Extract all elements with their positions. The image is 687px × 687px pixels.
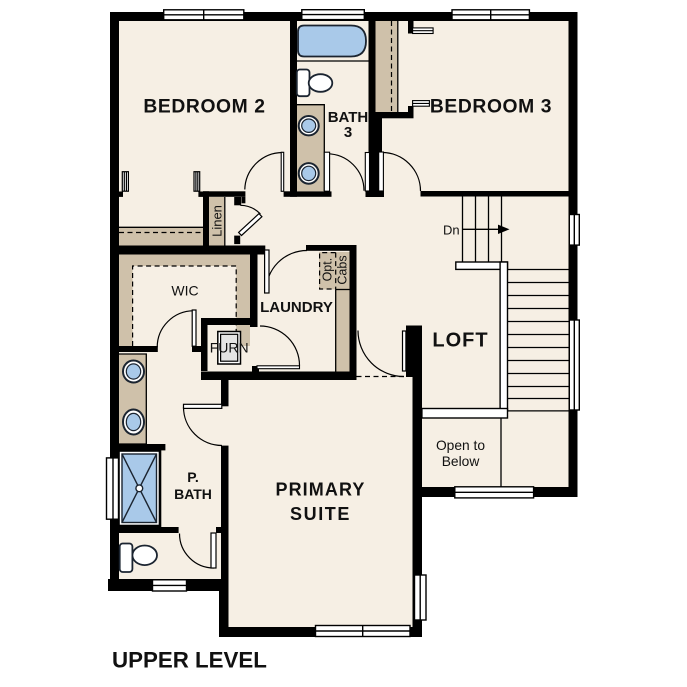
svg-text:LOFT: LOFT bbox=[432, 329, 488, 351]
svg-text:SUITE: SUITE bbox=[290, 504, 351, 524]
svg-text:Open to: Open to bbox=[436, 438, 485, 453]
svg-text:Cabs: Cabs bbox=[336, 255, 350, 284]
svg-text:LAUNDRY: LAUNDRY bbox=[260, 299, 333, 316]
svg-text:UPPER LEVEL: UPPER LEVEL bbox=[112, 648, 267, 673]
svg-text:FURN: FURN bbox=[210, 340, 249, 356]
svg-text:Dn: Dn bbox=[443, 222, 460, 237]
svg-text:Opt.: Opt. bbox=[320, 258, 334, 282]
svg-text:PRIMARY: PRIMARY bbox=[275, 479, 365, 499]
svg-text:BEDROOM 3: BEDROOM 3 bbox=[430, 97, 552, 118]
svg-text:BATH: BATH bbox=[174, 486, 212, 502]
svg-text:3: 3 bbox=[344, 124, 352, 141]
svg-text:WIC: WIC bbox=[171, 282, 198, 298]
svg-text:BEDROOM 2: BEDROOM 2 bbox=[143, 97, 265, 118]
svg-text:P.: P. bbox=[187, 469, 198, 485]
svg-text:Linen: Linen bbox=[210, 205, 225, 237]
svg-text:Below: Below bbox=[442, 454, 480, 469]
